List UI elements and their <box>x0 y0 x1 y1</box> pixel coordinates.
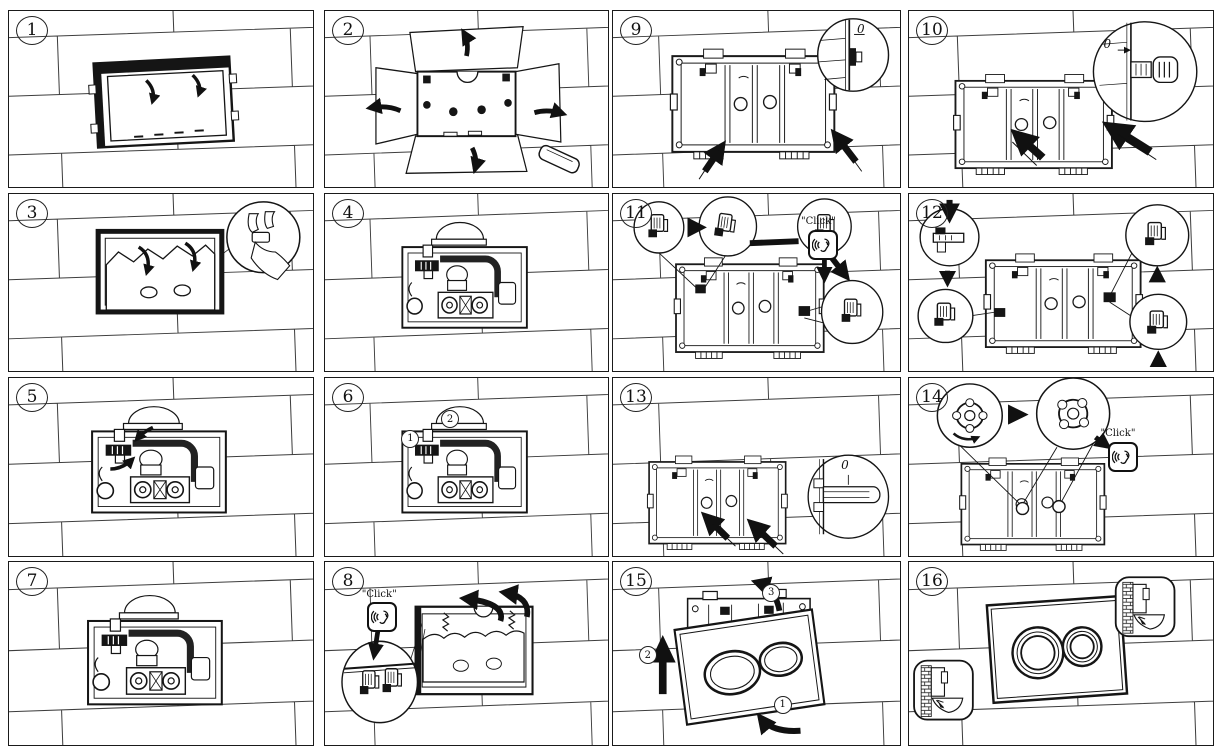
mounting-frame <box>984 254 1142 354</box>
illustration-5 <box>9 378 313 556</box>
flush-wall-detail <box>818 19 889 91</box>
illustration-7 <box>9 562 313 745</box>
panel-number: 1 <box>16 16 48 45</box>
step-panel-1: 1 <box>8 10 314 188</box>
step-panel-15: 15 1 2 3 <box>612 561 901 746</box>
ear-icon <box>812 234 834 256</box>
panel-number: 12 <box>916 199 948 228</box>
zero-gap-label: 0 <box>857 22 865 36</box>
inner-sheet-fold <box>98 202 300 312</box>
panel-number: 10 <box>916 16 948 45</box>
flush-plate <box>675 609 825 724</box>
illustration-2 <box>325 11 608 187</box>
step-panel-7: 7 <box>8 561 314 746</box>
flush-plate-final <box>987 596 1127 703</box>
clip-detail <box>342 641 417 722</box>
step-panel-9: 9 0 <box>612 10 901 188</box>
click-sound-badge <box>808 230 838 260</box>
illustration-6 <box>325 378 608 556</box>
ear-icon <box>1112 446 1134 468</box>
illustration-4 <box>325 194 608 371</box>
step-panel-13: 13 0 <box>612 377 901 557</box>
panel-number: 13 <box>620 383 652 412</box>
cistern-mechanism <box>88 596 222 705</box>
panel-number: 2 <box>332 16 364 45</box>
click-label: "Click" <box>362 589 397 600</box>
illustration-12 <box>909 194 1213 371</box>
panel-number: 6 <box>332 383 364 412</box>
instruction-sheet: 1 <box>0 0 1219 753</box>
toilet-side-view-inset <box>1116 577 1175 636</box>
click-label: "Click" <box>1101 428 1136 439</box>
step-panel-14: 14 "Click" <box>908 377 1214 557</box>
panel-number: 16 <box>916 567 948 596</box>
sequence-badge-1: 1 <box>401 430 419 448</box>
step-panel-3: 3 <box>8 193 314 372</box>
mounting-frame <box>670 49 836 159</box>
toilet-side-view-inset <box>914 661 973 720</box>
click-sound-badge <box>367 602 397 632</box>
hand-detail <box>227 202 300 280</box>
cistern-mechanism <box>402 407 527 513</box>
panel-number: 15 <box>620 567 652 596</box>
cistern-mechanism <box>402 223 527 328</box>
step-panel-16: 16 <box>908 561 1214 746</box>
illustration-1 <box>9 11 313 187</box>
sequence-badge-2: 2 <box>639 646 657 664</box>
zero-gap-label: 0 <box>1104 37 1112 51</box>
panel-number: 3 <box>16 199 48 228</box>
step-panel-8: 8 "Click" <box>324 561 609 746</box>
wedge-piece <box>537 144 581 175</box>
panel-number: 5 <box>16 383 48 412</box>
click-label: "Click" <box>801 216 836 227</box>
sequence-badge-1: 1 <box>774 696 792 714</box>
illustration-13 <box>613 378 900 556</box>
illustration-3 <box>9 194 313 371</box>
zero-depth-label: 0 <box>841 458 849 472</box>
step-panel-5: 5 <box>8 377 314 557</box>
wall-opening-cover <box>88 56 240 147</box>
sequence-badge-2: 2 <box>441 410 459 428</box>
panel-number: 4 <box>332 199 364 228</box>
panel-number: 9 <box>620 16 652 45</box>
ear-icon <box>371 606 393 628</box>
step-panel-10: 10 0 <box>908 10 1214 188</box>
panel-number: 8 <box>332 567 364 596</box>
illustration-10 <box>909 11 1213 187</box>
panel-number: 14 <box>916 383 948 412</box>
illustration-9 <box>613 11 900 187</box>
cistern-mechanism <box>92 407 226 513</box>
panel-number: 11 <box>620 199 652 228</box>
step-panel-11: 11 "Click" <box>612 193 901 372</box>
illustration-14 <box>909 378 1213 556</box>
illustration-16 <box>909 562 1213 745</box>
step-panel-4: 4 <box>324 193 609 372</box>
mounting-frame <box>960 458 1106 550</box>
panel-number: 7 <box>16 567 48 596</box>
illustration-11 <box>613 194 900 371</box>
step-panel-6: 6 1 2 <box>324 377 609 557</box>
mounting-frame <box>954 74 1114 174</box>
step-panel-12: 12 <box>908 193 1214 372</box>
click-sound-badge <box>1108 442 1138 472</box>
step-panel-2: 2 <box>324 10 609 188</box>
